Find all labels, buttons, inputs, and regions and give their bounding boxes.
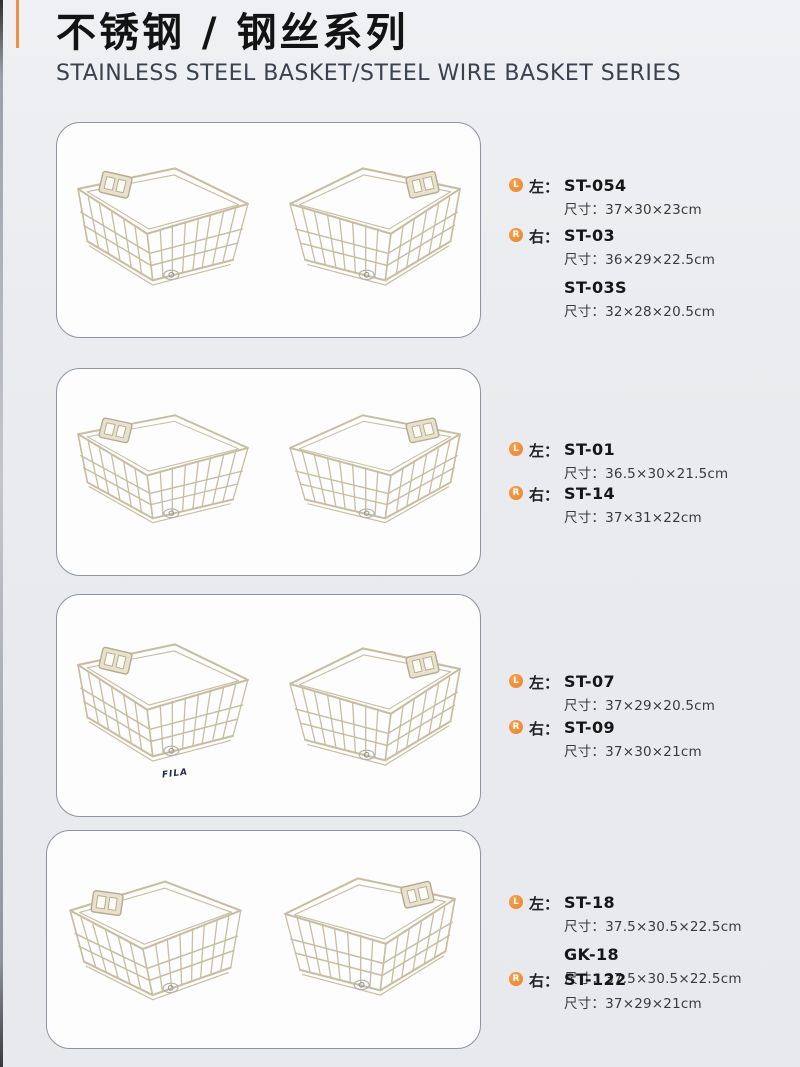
model-size: 尺寸：37.5×30.5×22.5cm	[564, 915, 742, 935]
spec-item-st07: L 左： ST-07 尺寸：37×29×20.5cm	[509, 672, 715, 724]
model-list: ST-09 尺寸：37×30×21cm	[564, 718, 702, 770]
model-size: 尺寸：36.5×30×21.5cm	[564, 462, 728, 482]
wire-basket-photo-st18	[54, 860, 262, 1027]
spec-item-st09: R 右： ST-09 尺寸：37×30×21cm	[509, 718, 702, 770]
wire-basket-photo-st14	[277, 403, 473, 541]
model-code: ST-122	[564, 970, 702, 989]
spec-item-st03: R 右： ST-03 尺寸：36×29×22.5cm ST-03S 尺寸：32×…	[509, 226, 715, 330]
model-code: ST-09	[564, 718, 702, 737]
model-size: 尺寸：37×29×20.5cm	[564, 694, 715, 714]
model-size: 尺寸：37×31×22cm	[564, 506, 702, 526]
model-list: ST-14 尺寸：37×31×22cm	[564, 484, 702, 536]
model-code: ST-01	[564, 440, 728, 459]
model-list: ST-03 尺寸：36×29×22.5cm ST-03S 尺寸：32×28×20…	[564, 226, 715, 330]
page-header: 不锈钢 / 钢丝系列 STAINLESS STEEL BASKET/STEEL …	[56, 10, 681, 86]
wire-basket-photo-st07	[65, 631, 261, 781]
model-code: ST-07	[564, 672, 715, 691]
model-list: ST-07 尺寸：37×29×20.5cm	[564, 672, 715, 724]
spec-item-st054: L 左： ST-054 尺寸：37×30×23cm	[509, 176, 702, 228]
wire-basket-photo-st01	[65, 403, 261, 541]
left-indicator-icon: L	[509, 442, 523, 456]
left-indicator-icon: L	[509, 674, 523, 688]
scan-edge-artifact	[0, 0, 3, 1067]
model-code: GK-18	[564, 945, 742, 964]
side-label: 左：	[529, 176, 559, 197]
accent-tick-bar	[16, 0, 19, 48]
model-list: ST-054 尺寸：37×30×23cm	[564, 176, 702, 228]
product-photo-panel-1	[56, 122, 481, 338]
product-photo-panel-2	[56, 368, 481, 576]
model-code: ST-18	[564, 893, 742, 912]
wire-basket-photo-st054	[65, 155, 261, 305]
side-label: 右：	[529, 718, 559, 739]
side-label: 左：	[529, 440, 559, 461]
side-label: 左：	[529, 893, 559, 914]
model-size: 尺寸：37×30×23cm	[564, 198, 702, 218]
model-list: ST-122 尺寸：37×29×21cm	[564, 970, 702, 1022]
side-label: 右：	[529, 970, 559, 991]
left-indicator-icon: L	[509, 895, 523, 909]
side-label: 右：	[529, 484, 559, 505]
spec-item-st14: R 右： ST-14 尺寸：37×31×22cm	[509, 484, 702, 536]
side-label: 左：	[529, 672, 559, 693]
product-photo-panel-4	[46, 830, 481, 1049]
page-title-english: STAINLESS STEEL BASKET/STEEL WIRE BASKET…	[56, 61, 681, 86]
model-code: ST-03	[564, 226, 715, 245]
model-code: ST-03S	[564, 278, 715, 297]
wire-basket-photo-st09	[277, 635, 473, 785]
model-size: 尺寸：37×30×21cm	[564, 740, 702, 760]
model-size: 尺寸：32×28×20.5cm	[564, 300, 715, 320]
side-label: 右：	[529, 226, 559, 247]
left-indicator-icon: L	[509, 178, 523, 192]
model-size: 尺寸：36×29×22.5cm	[564, 248, 715, 268]
wire-basket-photo-st122	[272, 865, 468, 1015]
model-code: ST-054	[564, 176, 702, 195]
model-code: ST-14	[564, 484, 702, 503]
right-indicator-icon: R	[509, 228, 523, 242]
wire-basket-photo-st03	[277, 155, 473, 305]
page-title-chinese: 不锈钢 / 钢丝系列	[56, 10, 681, 56]
product-photo-panel-3: FILA	[56, 594, 481, 817]
right-indicator-icon: R	[509, 972, 523, 986]
right-indicator-icon: R	[509, 720, 523, 734]
right-indicator-icon: R	[509, 486, 523, 500]
model-size: 尺寸：37×29×21cm	[564, 992, 702, 1012]
spec-item-st122: R 右： ST-122 尺寸：37×29×21cm	[509, 970, 702, 1022]
